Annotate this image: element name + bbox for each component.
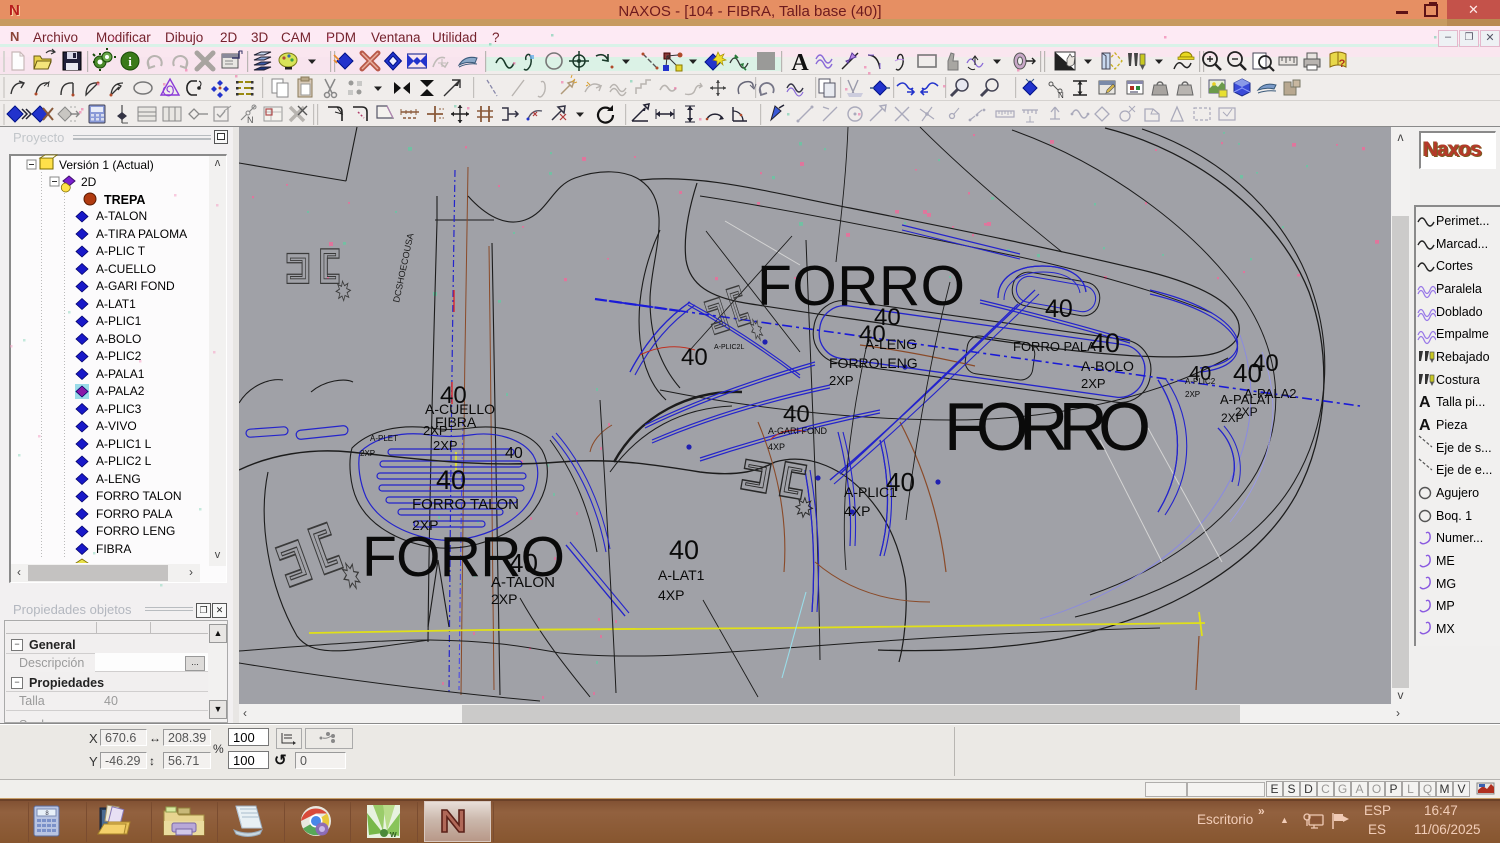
- svg-text:A-PLIC2L: A-PLIC2L: [714, 344, 744, 351]
- svg-text:i: i: [128, 54, 132, 69]
- svg-text:FORRO TALON: FORRO TALON: [412, 496, 519, 513]
- svg-text:W: W: [390, 832, 397, 839]
- svg-text:4XP: 4XP: [844, 503, 870, 519]
- svg-text:40: 40: [669, 535, 699, 565]
- svg-text:A-TALON: A-TALON: [491, 574, 555, 591]
- svg-text:40: 40: [505, 445, 523, 462]
- svg-text:A-LENG: A-LENG: [865, 336, 917, 352]
- svg-text:2XP: 2XP: [829, 373, 854, 388]
- svg-text:N: N: [1058, 91, 1064, 100]
- svg-text:FORRO: FORRO: [757, 254, 965, 318]
- svg-text:A-PLIC1: A-PLIC1: [844, 484, 897, 500]
- svg-text:?: ?: [1339, 58, 1346, 70]
- svg-text:2D: 2D: [81, 175, 97, 189]
- svg-text:2XP: 2XP: [412, 517, 438, 533]
- svg-text:DCSHOECOUSA: DCSHOECOUSA: [391, 232, 415, 303]
- svg-text:2XP: 2XP: [1221, 411, 1244, 425]
- svg-text:2XP: 2XP: [360, 449, 375, 458]
- svg-text:2XP: 2XP: [1081, 376, 1106, 391]
- svg-text:A-PLIC2: A-PLIC2: [1185, 377, 1216, 386]
- svg-text:TREPA: TREPA: [104, 193, 145, 207]
- svg-text:2XP: 2XP: [491, 591, 517, 607]
- svg-text:A-LAT1: A-LAT1: [658, 567, 705, 583]
- svg-text:40: 40: [1045, 295, 1073, 323]
- svg-text:40: 40: [681, 344, 708, 371]
- svg-text:2XP: 2XP: [423, 423, 448, 438]
- svg-text:A: A: [1419, 417, 1431, 434]
- svg-text:40: 40: [436, 465, 466, 495]
- svg-text:N: N: [247, 115, 254, 125]
- svg-text:A: A: [791, 50, 809, 76]
- svg-text:A-BOLO: A-BOLO: [1081, 358, 1134, 374]
- svg-text:40: 40: [783, 401, 810, 428]
- svg-text:A: A: [1419, 394, 1431, 411]
- svg-text:FORROLENG: FORROLENG: [829, 355, 918, 371]
- svg-text:2XP: 2XP: [1185, 390, 1200, 399]
- svg-text:FORRO PALA: FORRO PALA: [1013, 339, 1096, 354]
- svg-text:40: 40: [874, 304, 901, 331]
- svg-text:A-PLET: A-PLET: [370, 434, 398, 443]
- svg-text:4XP: 4XP: [658, 587, 684, 603]
- svg-text:FORRO: FORRO: [944, 389, 1151, 465]
- svg-text:2XP: 2XP: [433, 438, 458, 453]
- svg-text:A-GARI FOND: A-GARI FOND: [768, 426, 828, 436]
- svg-text:40: 40: [1252, 350, 1279, 377]
- svg-text:4XP: 4XP: [768, 442, 785, 452]
- svg-text:Versión 1 (Actual): Versión 1 (Actual): [59, 158, 154, 172]
